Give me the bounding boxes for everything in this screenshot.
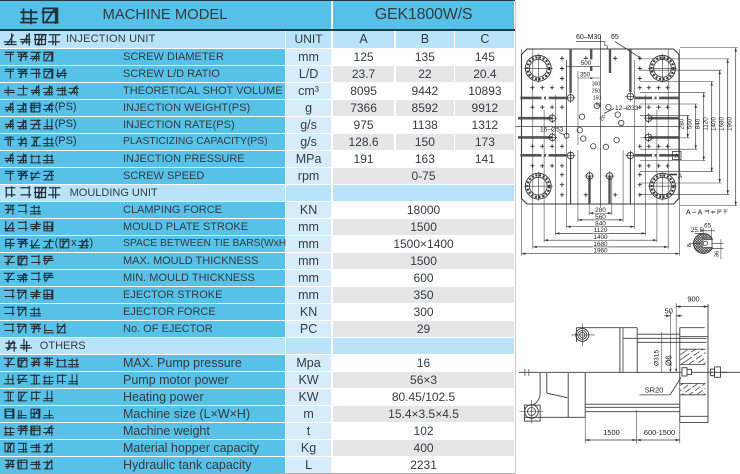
svg-text:SR20: SR20 bbox=[645, 385, 664, 394]
svg-text:60–M30: 60–M30 bbox=[576, 34, 601, 41]
svg-text:900: 900 bbox=[687, 295, 699, 304]
svg-text:500: 500 bbox=[581, 60, 592, 67]
svg-text:12–Ø33: 12–Ø33 bbox=[615, 105, 639, 112]
svg-text:16–Ø53: 16–Ø53 bbox=[540, 127, 564, 134]
svg-text:1500: 1500 bbox=[603, 428, 619, 437]
svg-text:560: 560 bbox=[686, 118, 693, 129]
svg-text:1120: 1120 bbox=[702, 117, 709, 131]
svg-text:Ø6: Ø6 bbox=[664, 355, 673, 366]
svg-text:A – A: A – A bbox=[686, 210, 703, 217]
svg-text:50: 50 bbox=[665, 306, 673, 315]
svg-text:300: 300 bbox=[592, 82, 601, 88]
svg-text:840: 840 bbox=[694, 118, 701, 129]
svg-text:36: 36 bbox=[714, 251, 720, 257]
svg-text:25.5: 25.5 bbox=[691, 227, 704, 234]
svg-text:600-1500: 600-1500 bbox=[644, 428, 675, 437]
svg-text:A: A bbox=[675, 153, 680, 160]
svg-text:350: 350 bbox=[580, 72, 591, 79]
svg-text:65: 65 bbox=[704, 222, 711, 229]
svg-text:280: 280 bbox=[678, 118, 685, 129]
svg-text:1960: 1960 bbox=[726, 117, 733, 132]
svg-text:65: 65 bbox=[611, 34, 619, 41]
svg-text:1960: 1960 bbox=[593, 248, 608, 255]
svg-text:50: 50 bbox=[596, 103, 602, 109]
svg-text:250: 250 bbox=[592, 89, 601, 95]
svg-text:Ø315: Ø315 bbox=[654, 350, 661, 366]
svg-text:1400: 1400 bbox=[710, 117, 717, 132]
svg-text:A: A bbox=[678, 173, 683, 180]
svg-text:1680: 1680 bbox=[718, 117, 725, 132]
svg-text:150: 150 bbox=[593, 96, 602, 102]
svg-text:8: 8 bbox=[687, 244, 693, 247]
